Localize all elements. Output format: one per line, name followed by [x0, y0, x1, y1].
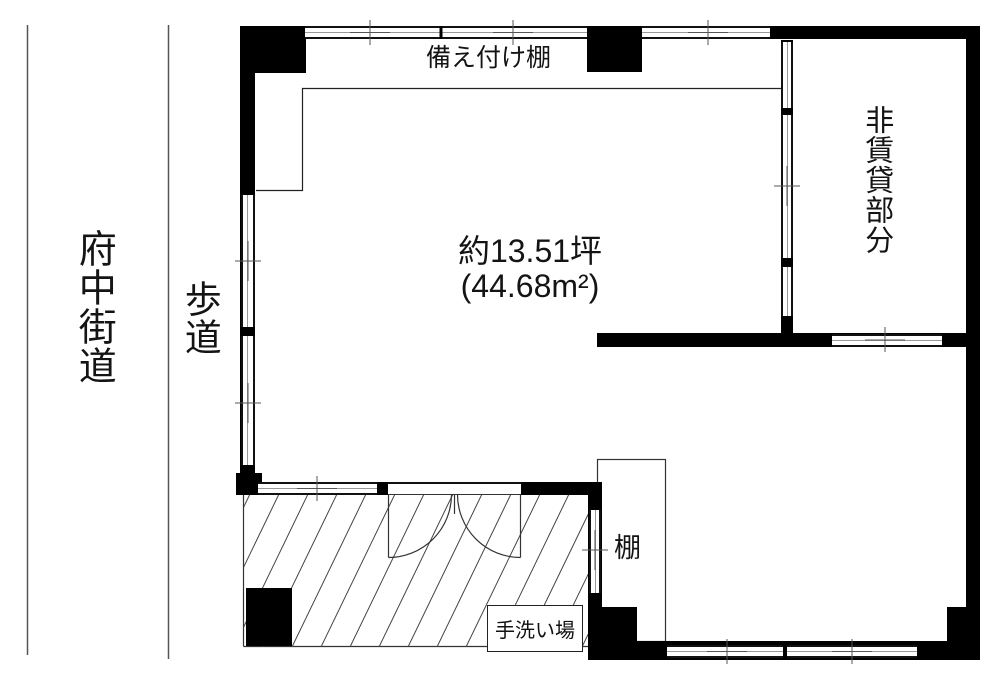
built-in-shelf-boundary: [256, 89, 781, 191]
road-name-label: 府中街道: [73, 229, 113, 385]
floorplan-overlay: [0, 0, 1000, 680]
built-in-shelf-label: 備え付け棚: [426, 45, 551, 72]
floor-area-tsubo: 約13.51坪: [420, 235, 640, 269]
double-door-swing: [389, 495, 521, 558]
non-rental-label: 非賃貸部分: [861, 105, 892, 255]
floor-area-sqm: (44.68m²): [420, 270, 640, 304]
sidewalk-label: 歩道: [180, 280, 219, 356]
window-ticks: [235, 20, 905, 664]
hand-wash-area-label: 手洗い場: [487, 605, 583, 652]
shelf-label: 棚: [614, 534, 641, 563]
floorplan-canvas: 府中街道 歩道 備え付け棚 約13.51坪 (44.68m²) 非賃貸部分 棚 …: [0, 0, 1000, 680]
hand-wash-area-text: 手洗い場: [495, 614, 575, 643]
